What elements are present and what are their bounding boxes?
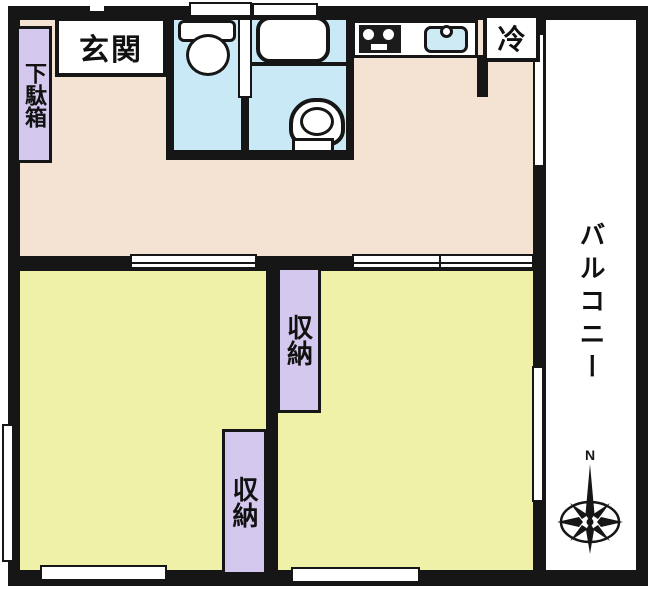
- bathtub-ledge-line: [249, 62, 346, 66]
- sliding-door-room-left: [130, 254, 257, 269]
- wall-bath-left: [166, 12, 174, 160]
- balcony-label: バルコニー: [578, 221, 604, 386]
- shoe-cabinet-box: 下駄箱: [16, 26, 52, 163]
- compass-icon: N: [553, 446, 628, 564]
- stove-grill: [371, 44, 387, 50]
- window-balcony-lower: [532, 366, 544, 502]
- sliding-door-panel-split: [439, 256, 441, 267]
- washbasin-bowl-icon: [186, 34, 230, 76]
- storage-lower-label: 収納: [226, 476, 263, 528]
- window-bottom-right: [291, 567, 420, 583]
- entrance-label-box: 玄関: [55, 17, 167, 77]
- shoe-cabinet-label: 下駄箱: [18, 62, 50, 128]
- sink-faucet-icon: [440, 25, 453, 38]
- compass-center-dot: [587, 519, 594, 526]
- refrigerator-box: 冷: [483, 14, 540, 62]
- window-top-bath-right: [252, 3, 318, 17]
- compass-south-spike: [586, 522, 594, 554]
- window-top-bath-left: [189, 2, 252, 17]
- door-bath-divider: [238, 18, 252, 98]
- bathtub-icon: [256, 16, 330, 63]
- stove-icon: [359, 25, 401, 53]
- refrigerator-label: 冷: [497, 18, 525, 58]
- wall-bath-right: [346, 12, 354, 160]
- sliding-door-room-right: [352, 254, 534, 269]
- compass-north-spike: [586, 464, 595, 522]
- window-bottom-left: [40, 565, 167, 581]
- compass-nw-spike: [570, 503, 588, 519]
- wall-bath-bottom: [166, 150, 354, 160]
- storage-lower-box: 収納: [222, 429, 267, 575]
- sliding-door-track-line: [132, 262, 255, 264]
- balcony-label-wrap: バルコニー: [574, 188, 608, 418]
- sliding-door-track-line: [354, 262, 532, 264]
- wall-right: [636, 6, 648, 586]
- compass-sw-spike: [570, 525, 588, 541]
- compass-ne-spike: [592, 503, 610, 519]
- stove-burner-right: [383, 29, 394, 40]
- entrance-door-mark: [90, 0, 104, 11]
- floorplan: 玄関 下駄箱 冷 収納 収納 バルコニー N: [0, 0, 655, 592]
- window-left-wall: [2, 424, 14, 562]
- compass-north-label: N: [585, 447, 595, 463]
- storage-upper-box: 収納: [277, 267, 321, 413]
- toilet-bowl-inner: [300, 107, 334, 136]
- storage-upper-label: 収納: [281, 314, 318, 366]
- compass-se-spike: [592, 525, 610, 541]
- stove-burner-left: [363, 29, 374, 40]
- entrance-label: 玄関: [79, 25, 143, 69]
